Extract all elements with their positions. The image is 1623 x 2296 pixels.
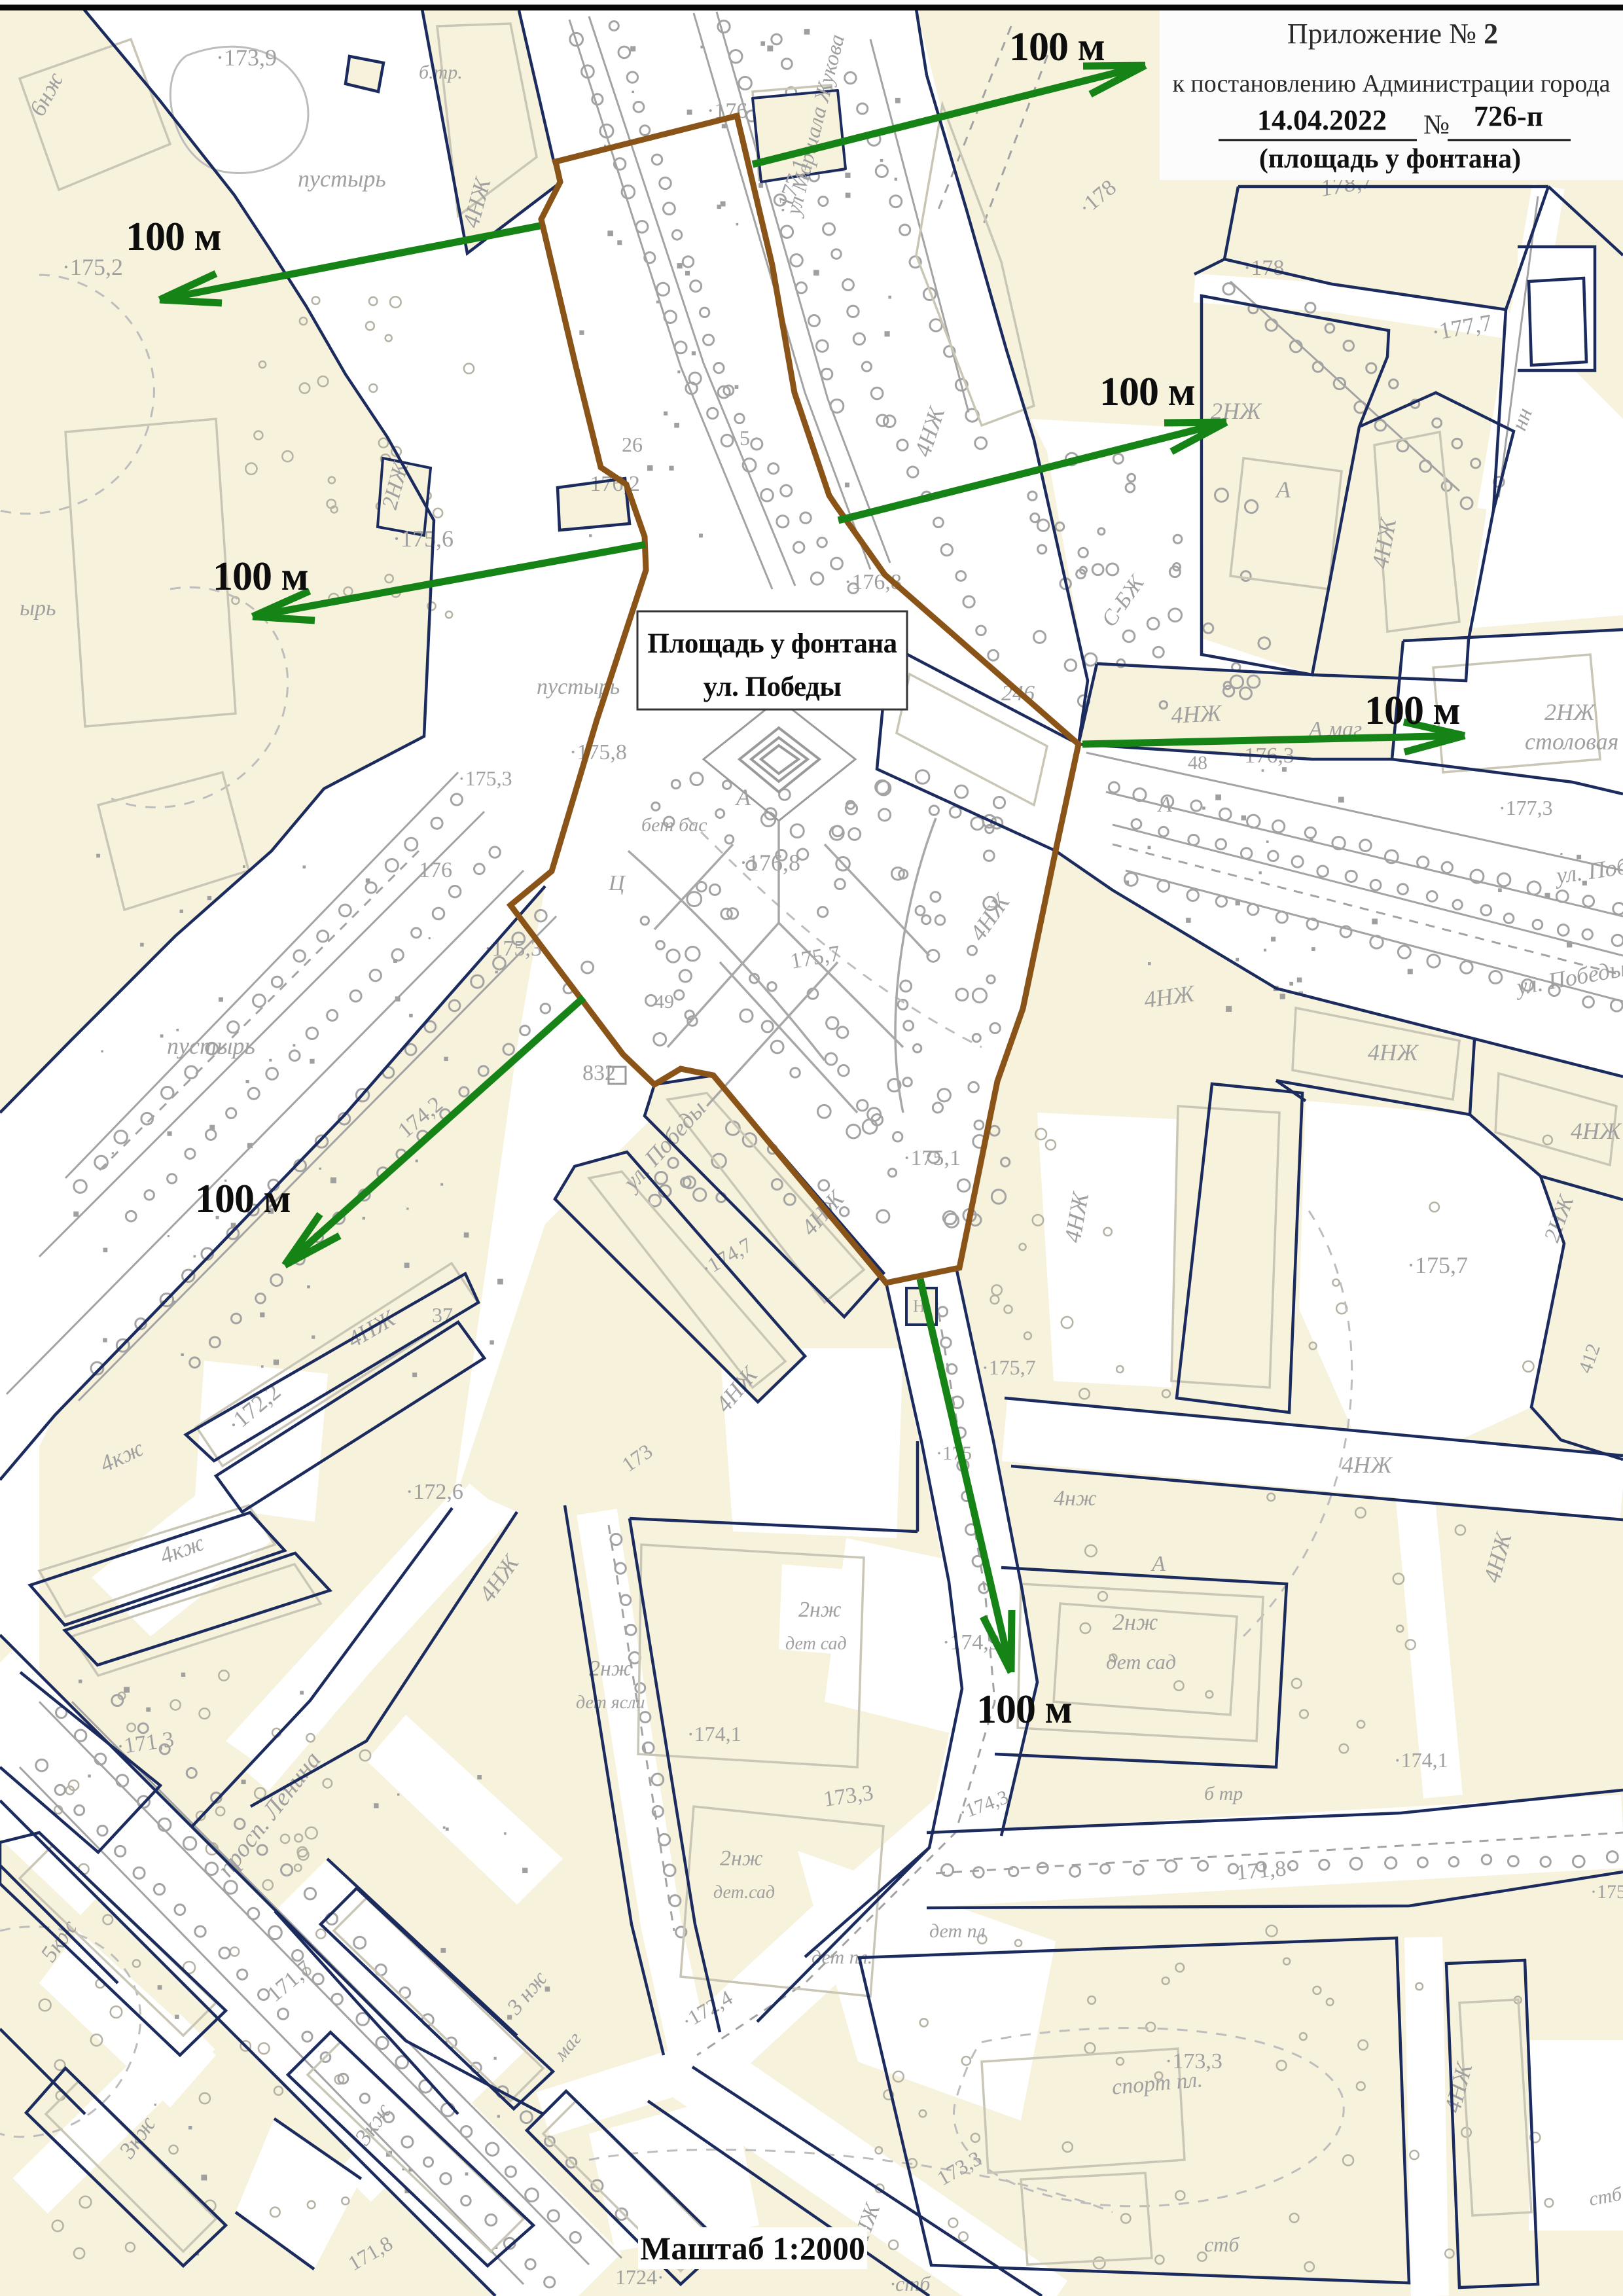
svg-text:2нж: 2нж — [798, 1598, 842, 1622]
svg-text:·175,6: ·175,6 — [393, 526, 454, 552]
svg-text:4нж: 4нж — [1054, 1486, 1097, 1511]
svg-text:100 м: 100 м — [976, 1687, 1072, 1732]
svg-text:49: 49 — [654, 991, 674, 1013]
svg-text:столовая: столовая — [1525, 728, 1618, 755]
svg-text:к постановлению Администрации: к постановлению Администрации города — [1172, 70, 1610, 98]
svg-text:бет бас: бет бас — [641, 814, 707, 836]
svg-text:·175,7: ·175,7 — [982, 1355, 1036, 1379]
svg-text:дет сад: дет сад — [1106, 1650, 1176, 1674]
svg-text:№: № — [1423, 110, 1450, 140]
svg-text:4НЖ: 4НЖ — [1170, 700, 1223, 728]
svg-text:Площадь у фонтана: Площадь у фонтана — [647, 628, 897, 659]
svg-text:2нж: 2нж — [589, 1657, 632, 1681]
svg-text:(площадь у фонтана): (площадь у фонтана) — [1259, 144, 1521, 174]
svg-text:100 м: 100 м — [126, 215, 221, 259]
svg-text:·175: ·175 — [936, 1443, 972, 1464]
svg-text:100 м: 100 м — [1009, 25, 1105, 69]
svg-text:·175,8: ·175,8 — [569, 740, 627, 764]
svg-text:832: 832 — [582, 1061, 616, 1085]
svg-text:дет сад: дет сад — [785, 1634, 847, 1654]
svg-text:Маштаб 1:2000: Маштаб 1:2000 — [640, 2230, 865, 2267]
svg-text:дет.сад: дет.сад — [713, 1882, 775, 1903]
svg-text:дет пл: дет пл — [929, 1920, 986, 1942]
svg-text:А: А — [1157, 793, 1172, 817]
svg-text:2нж: 2нж — [720, 1846, 763, 1871]
svg-text:пустырь: пустырь — [298, 166, 386, 192]
svg-text:100 м: 100 м — [213, 554, 308, 599]
svg-text:4НЖ: 4НЖ — [1571, 1118, 1622, 1144]
svg-text:б тр: б тр — [1204, 1783, 1243, 1804]
svg-text:2нж: 2нж — [1113, 1609, 1158, 1635]
svg-text:14.04.2022: 14.04.2022 — [1257, 104, 1387, 136]
svg-text:4НЖ: 4НЖ — [1342, 1452, 1393, 1478]
svg-text:А: А — [1275, 476, 1291, 503]
svg-text:Ц: Ц — [608, 871, 626, 895]
svg-text:стб: стб — [1204, 2233, 1240, 2256]
svg-text:·175,1: ·175,1 — [903, 1146, 961, 1170]
svg-text:б.тр.: б.тр. — [419, 62, 463, 83]
svg-text:5: 5 — [740, 426, 750, 450]
svg-text:·175,3: ·175,3 — [484, 937, 542, 961]
svg-text:·175,3: ·175,3 — [458, 766, 512, 790]
svg-text:А: А — [735, 784, 751, 810]
svg-text:100 м: 100 м — [1364, 689, 1460, 733]
svg-text:100 м: 100 м — [195, 1177, 291, 1221]
svg-text:·177,3: ·177,3 — [1499, 796, 1553, 819]
svg-text:171,8·: 171,8· — [1235, 1856, 1294, 1885]
svg-text:·172,6: ·172,6 — [406, 1480, 463, 1504]
svg-text:·174,1: ·174,1 — [1394, 1748, 1448, 1772]
svg-text:48: 48 — [1188, 752, 1207, 774]
svg-text:дет ясли: дет ясли — [576, 1693, 645, 1713]
svg-text:·174,1: ·174,1 — [687, 1722, 741, 1746]
svg-text:пустырь: пустырь — [167, 1033, 255, 1059]
svg-text:ырь: ырь — [20, 596, 56, 620]
svg-text:·175,2: ·175,2 — [62, 254, 123, 280]
svg-text:·175,7: ·175,7 — [1407, 1252, 1468, 1278]
svg-text:·176,8: ·176,8 — [740, 850, 800, 876]
svg-text:Приложение № 2: Приложение № 2 — [1287, 18, 1498, 50]
svg-text:100 м: 100 м — [1099, 370, 1195, 414]
svg-text:А: А — [1150, 1552, 1166, 1576]
svg-text:26: 26 — [622, 433, 643, 456]
svg-text:2НЖ: 2НЖ — [1544, 699, 1596, 725]
svg-text:ул. Победы: ул. Победы — [704, 672, 842, 702]
svg-text:726-п: 726-п — [1474, 100, 1543, 132]
svg-text:4НЖ: 4НЖ — [1368, 1039, 1419, 1066]
svg-text:·175,3: ·175,3 — [1590, 1881, 1623, 1903]
svg-text:·173,9: ·173,9 — [216, 45, 277, 71]
svg-text:176: 176 — [419, 858, 452, 882]
